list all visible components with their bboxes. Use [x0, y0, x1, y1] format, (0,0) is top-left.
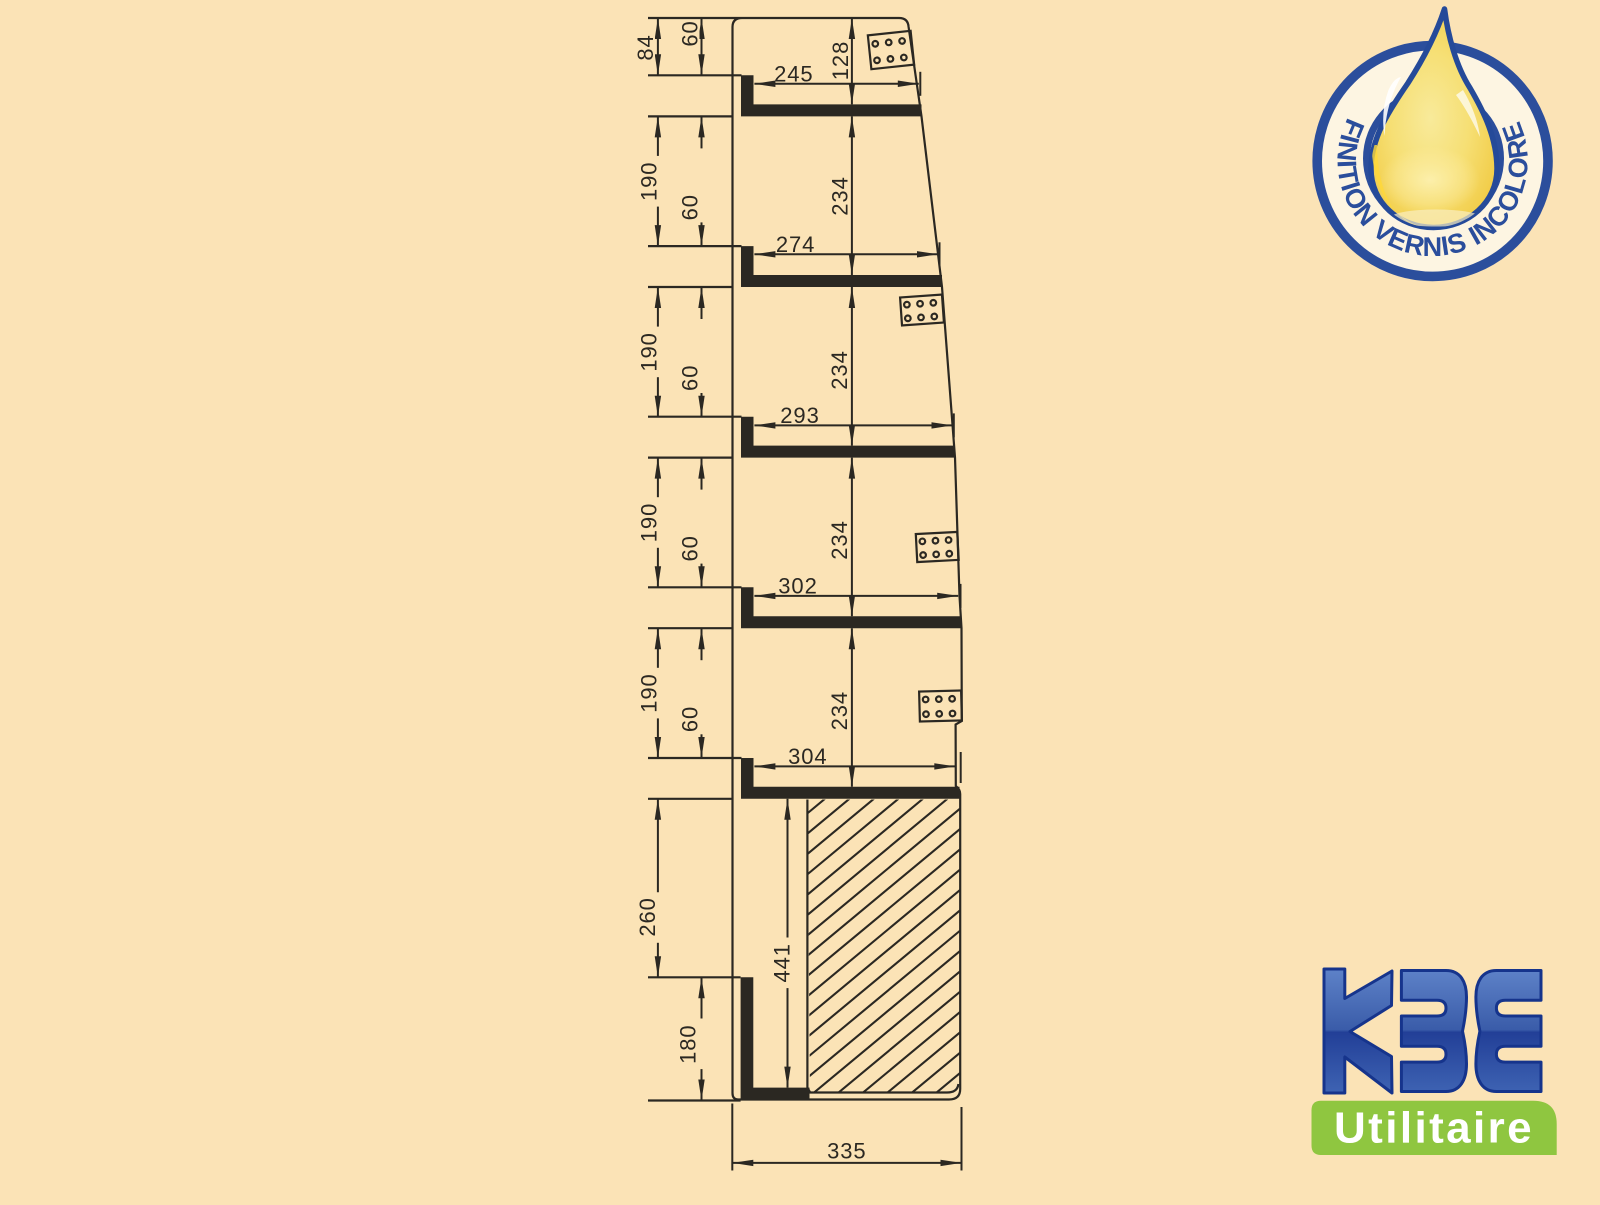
svg-text:60: 60: [678, 20, 703, 46]
svg-text:260: 260: [635, 897, 660, 936]
svg-text:60: 60: [678, 535, 703, 561]
svg-text:234: 234: [827, 350, 852, 389]
svg-text:Utilitaire: Utilitaire: [1334, 1104, 1534, 1153]
svg-text:190: 190: [637, 673, 662, 712]
svg-text:190: 190: [637, 503, 662, 542]
svg-text:335: 335: [827, 1139, 866, 1164]
svg-text:190: 190: [637, 332, 662, 371]
svg-text:234: 234: [827, 520, 852, 559]
svg-text:60: 60: [678, 365, 703, 391]
svg-text:60: 60: [678, 194, 703, 220]
svg-text:190: 190: [637, 162, 662, 201]
svg-text:293: 293: [780, 403, 819, 428]
svg-text:234: 234: [827, 691, 852, 730]
svg-text:180: 180: [676, 1024, 701, 1063]
svg-text:302: 302: [778, 574, 817, 599]
svg-text:304: 304: [788, 744, 827, 769]
svg-text:234: 234: [827, 176, 852, 215]
svg-text:274: 274: [776, 232, 815, 257]
svg-text:60: 60: [678, 706, 703, 732]
svg-text:84: 84: [633, 34, 658, 60]
svg-text:441: 441: [770, 943, 795, 982]
svg-text:245: 245: [774, 62, 813, 87]
svg-text:128: 128: [828, 41, 853, 80]
